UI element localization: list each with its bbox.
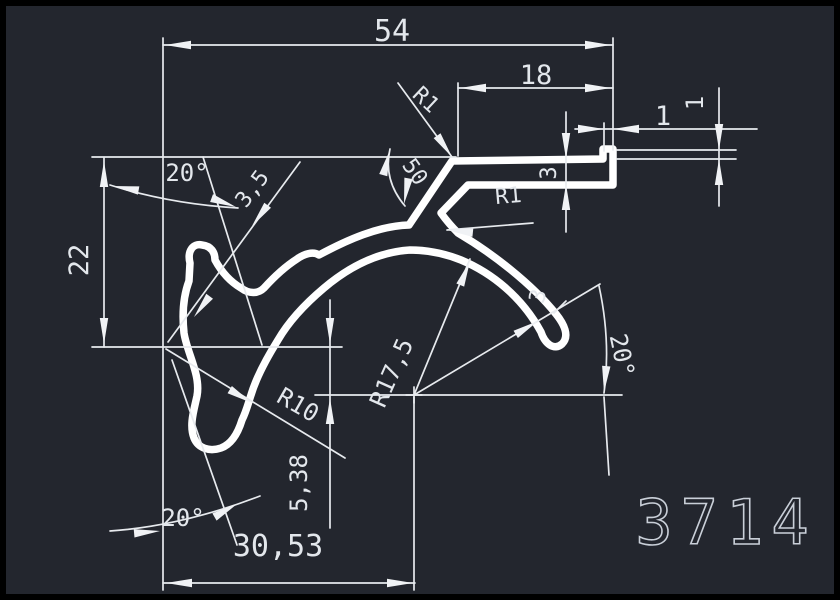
dim-flange-thickness: 3 [537, 166, 562, 179]
dim-angle-top-left: 20° [165, 159, 208, 187]
profile-number: 3714 [635, 486, 816, 559]
cad-drawing: 54 18 1 1 3 50 R1 R1 3,5 20° 22 R10 5,38… [0, 0, 840, 600]
dim-offset-horizontal: 30,53 [233, 529, 323, 564]
dim-angle-bottom-left: 20° [161, 504, 204, 532]
dim-flange-length: 18 [520, 60, 553, 91]
dim-height-left: 22 [64, 244, 95, 277]
dim-offset-vertical: 5,38 [285, 454, 313, 512]
dim-width-total: 54 [374, 14, 410, 49]
dim-lip-width: 1 [655, 101, 671, 132]
dim-lip-height: 1 [681, 96, 709, 110]
dim-fillet-neck: R1 [494, 183, 523, 210]
